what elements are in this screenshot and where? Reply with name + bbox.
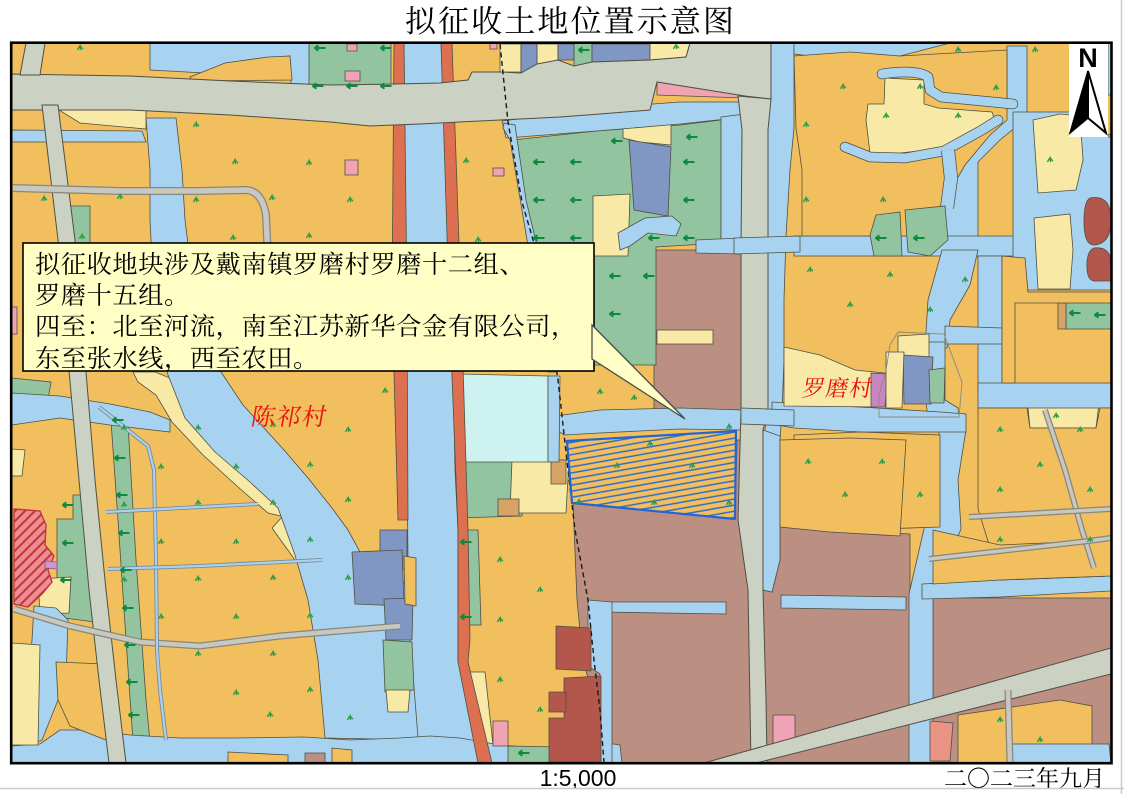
svg-text:1:5,000: 1:5,000 [540, 765, 617, 791]
svg-text:N: N [1078, 43, 1098, 73]
